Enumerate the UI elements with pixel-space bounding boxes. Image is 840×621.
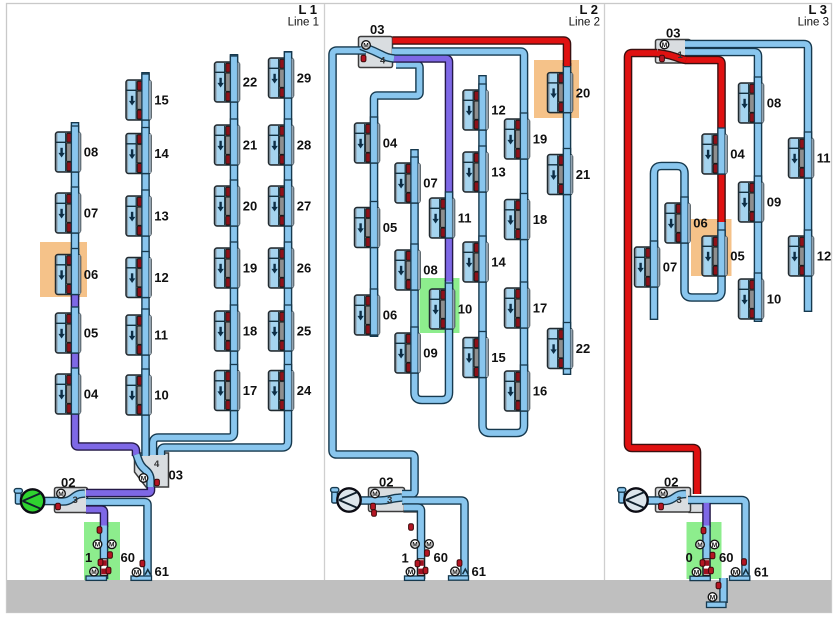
svg-text:L 2: L 2 <box>579 2 598 17</box>
svg-text:M: M <box>372 491 378 498</box>
svg-text:02: 02 <box>61 475 75 490</box>
svg-text:03: 03 <box>169 468 183 483</box>
svg-text:M: M <box>58 491 64 498</box>
svg-text:3: 3 <box>73 495 78 506</box>
svg-text:06: 06 <box>693 216 707 231</box>
svg-text:03: 03 <box>370 22 384 37</box>
svg-text:M: M <box>710 594 716 601</box>
svg-text:M: M <box>412 541 418 548</box>
svg-text:60: 60 <box>121 550 135 565</box>
svg-text:05: 05 <box>383 220 397 235</box>
svg-text:12: 12 <box>817 249 831 264</box>
svg-text:18: 18 <box>243 324 257 339</box>
svg-text:M: M <box>712 542 718 549</box>
svg-text:11: 11 <box>817 151 831 166</box>
svg-text:M: M <box>452 569 458 576</box>
svg-text:20: 20 <box>576 85 590 100</box>
svg-text:21: 21 <box>243 138 257 153</box>
svg-text:M: M <box>660 491 666 498</box>
svg-text:M: M <box>363 42 369 49</box>
svg-text:17: 17 <box>533 301 547 316</box>
svg-text:08: 08 <box>767 96 781 111</box>
svg-text:15: 15 <box>154 93 168 108</box>
svg-text:28: 28 <box>297 138 311 153</box>
svg-text:4: 4 <box>154 459 160 470</box>
svg-text:11: 11 <box>458 211 472 226</box>
svg-text:60: 60 <box>719 550 733 565</box>
svg-text:10: 10 <box>458 302 472 317</box>
svg-text:14: 14 <box>491 255 506 270</box>
svg-text:18: 18 <box>533 212 547 227</box>
svg-text:Line 1: Line 1 <box>288 17 319 29</box>
svg-text:L 1: L 1 <box>298 2 317 17</box>
svg-text:04: 04 <box>383 136 398 151</box>
svg-text:61: 61 <box>155 564 169 579</box>
svg-text:M: M <box>697 542 703 549</box>
svg-text:M: M <box>426 541 432 548</box>
svg-text:19: 19 <box>243 261 257 276</box>
svg-text:M: M <box>694 569 700 576</box>
svg-text:61: 61 <box>754 565 768 580</box>
svg-text:3: 3 <box>387 495 392 506</box>
svg-text:25: 25 <box>297 324 311 339</box>
svg-text:60: 60 <box>434 550 448 565</box>
svg-text:07: 07 <box>84 206 98 221</box>
svg-text:24: 24 <box>297 383 312 398</box>
svg-text:27: 27 <box>297 199 311 214</box>
svg-text:10: 10 <box>767 292 781 307</box>
svg-text:04: 04 <box>730 147 745 162</box>
svg-text:09: 09 <box>423 346 437 361</box>
svg-text:1: 1 <box>85 550 92 565</box>
svg-text:M: M <box>141 475 147 482</box>
svg-text:13: 13 <box>154 209 168 224</box>
svg-text:17: 17 <box>243 383 257 398</box>
svg-text:02: 02 <box>379 475 393 490</box>
svg-text:20: 20 <box>243 199 257 214</box>
svg-text:05: 05 <box>84 326 98 341</box>
svg-text:09: 09 <box>767 195 781 210</box>
svg-text:22: 22 <box>576 341 590 356</box>
svg-text:1: 1 <box>402 551 409 566</box>
svg-text:07: 07 <box>423 176 437 191</box>
svg-text:M: M <box>662 42 668 49</box>
svg-text:15: 15 <box>491 350 505 365</box>
svg-text:06: 06 <box>383 308 397 323</box>
svg-text:3: 3 <box>677 495 682 506</box>
svg-text:1: 1 <box>678 50 684 61</box>
svg-text:13: 13 <box>491 165 505 180</box>
svg-text:M: M <box>733 569 739 576</box>
svg-text:0: 0 <box>686 550 693 565</box>
svg-text:08: 08 <box>84 145 98 160</box>
svg-text:22: 22 <box>243 75 257 90</box>
svg-text:Line 3: Line 3 <box>798 17 829 29</box>
svg-text:14: 14 <box>154 146 169 161</box>
svg-text:M: M <box>91 569 97 576</box>
svg-text:26: 26 <box>297 261 311 276</box>
svg-text:05: 05 <box>730 249 744 264</box>
svg-text:02: 02 <box>664 475 678 490</box>
svg-text:M: M <box>95 542 101 549</box>
svg-text:11: 11 <box>154 328 168 343</box>
svg-text:04: 04 <box>84 387 99 402</box>
svg-text:4: 4 <box>380 56 386 67</box>
svg-text:M: M <box>408 569 414 576</box>
svg-text:10: 10 <box>154 388 168 403</box>
svg-text:19: 19 <box>533 132 547 147</box>
svg-text:21: 21 <box>576 167 590 182</box>
svg-text:12: 12 <box>154 270 168 285</box>
svg-text:61: 61 <box>472 564 486 579</box>
svg-text:08: 08 <box>423 263 437 278</box>
svg-text:M: M <box>109 542 115 549</box>
svg-text:16: 16 <box>533 384 547 399</box>
svg-text:M: M <box>134 570 140 577</box>
svg-text:07: 07 <box>663 260 677 275</box>
svg-text:06: 06 <box>84 267 98 282</box>
svg-text:Line 2: Line 2 <box>569 17 600 29</box>
svg-text:12: 12 <box>491 103 505 118</box>
svg-text:03: 03 <box>666 26 680 41</box>
svg-text:29: 29 <box>297 71 311 86</box>
svg-text:L 3: L 3 <box>808 2 827 17</box>
